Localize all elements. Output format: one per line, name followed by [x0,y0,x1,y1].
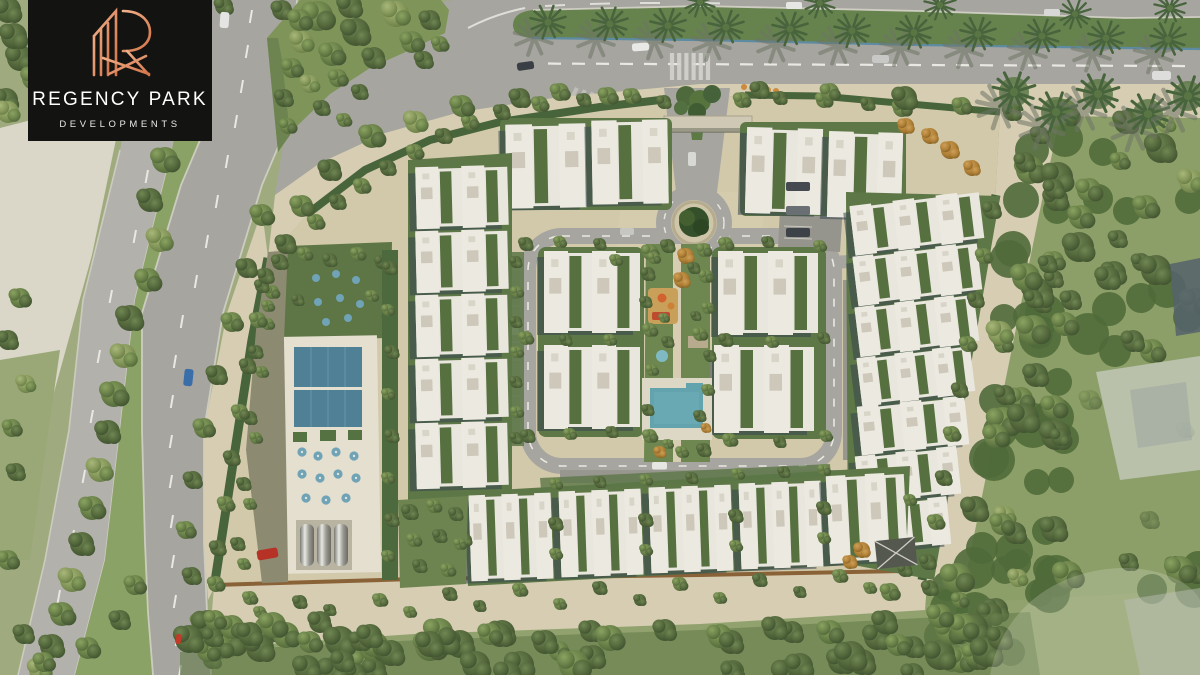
svg-text:DEVELOPMENTS: DEVELOPMENTS [59,119,180,130]
svg-text:REGENCY PARK: REGENCY PARK [32,89,208,110]
